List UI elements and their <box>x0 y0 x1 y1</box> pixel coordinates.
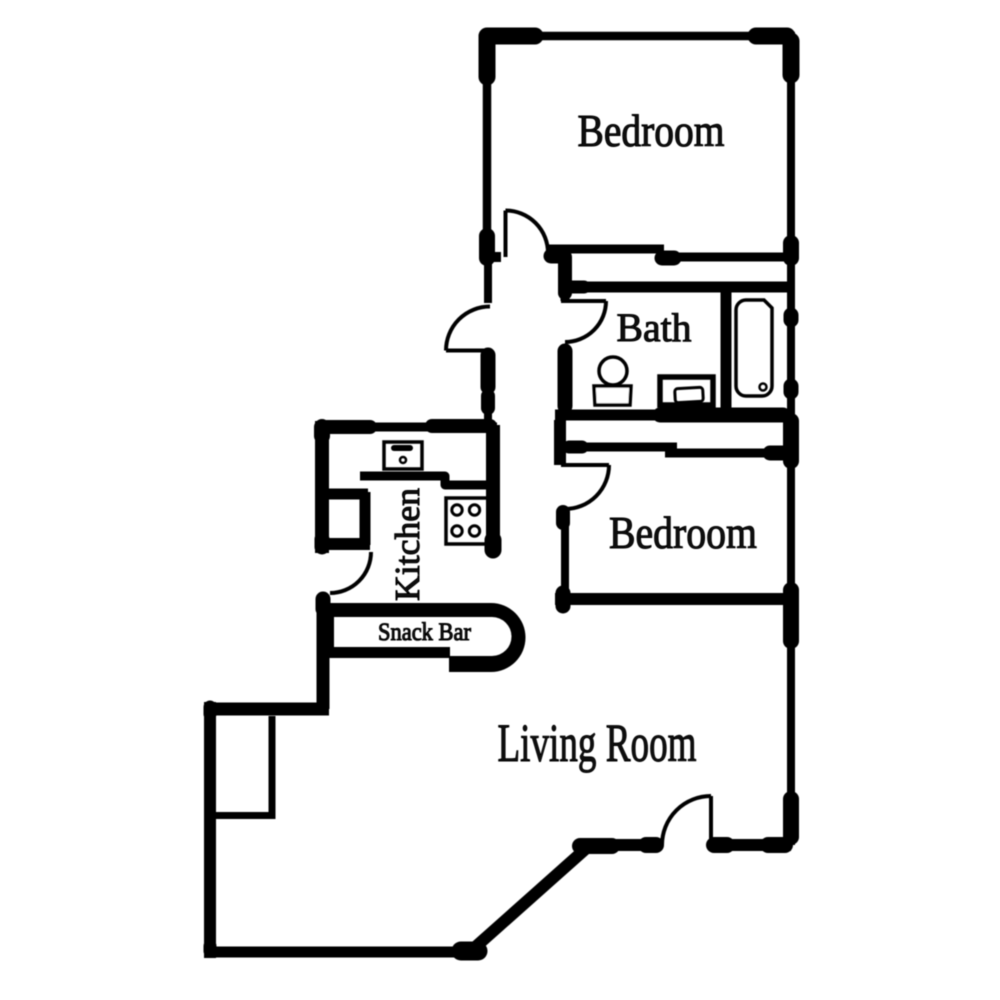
svg-text:Bath: Bath <box>617 305 692 350</box>
svg-text:Snack Bar: Snack Bar <box>378 619 472 646</box>
svg-text:Bedroom: Bedroom <box>578 106 725 156</box>
svg-text:Living Room: Living Room <box>498 713 697 773</box>
svg-text:Kitchen: Kitchen <box>388 488 427 601</box>
svg-text:Bedroom: Bedroom <box>609 508 757 558</box>
